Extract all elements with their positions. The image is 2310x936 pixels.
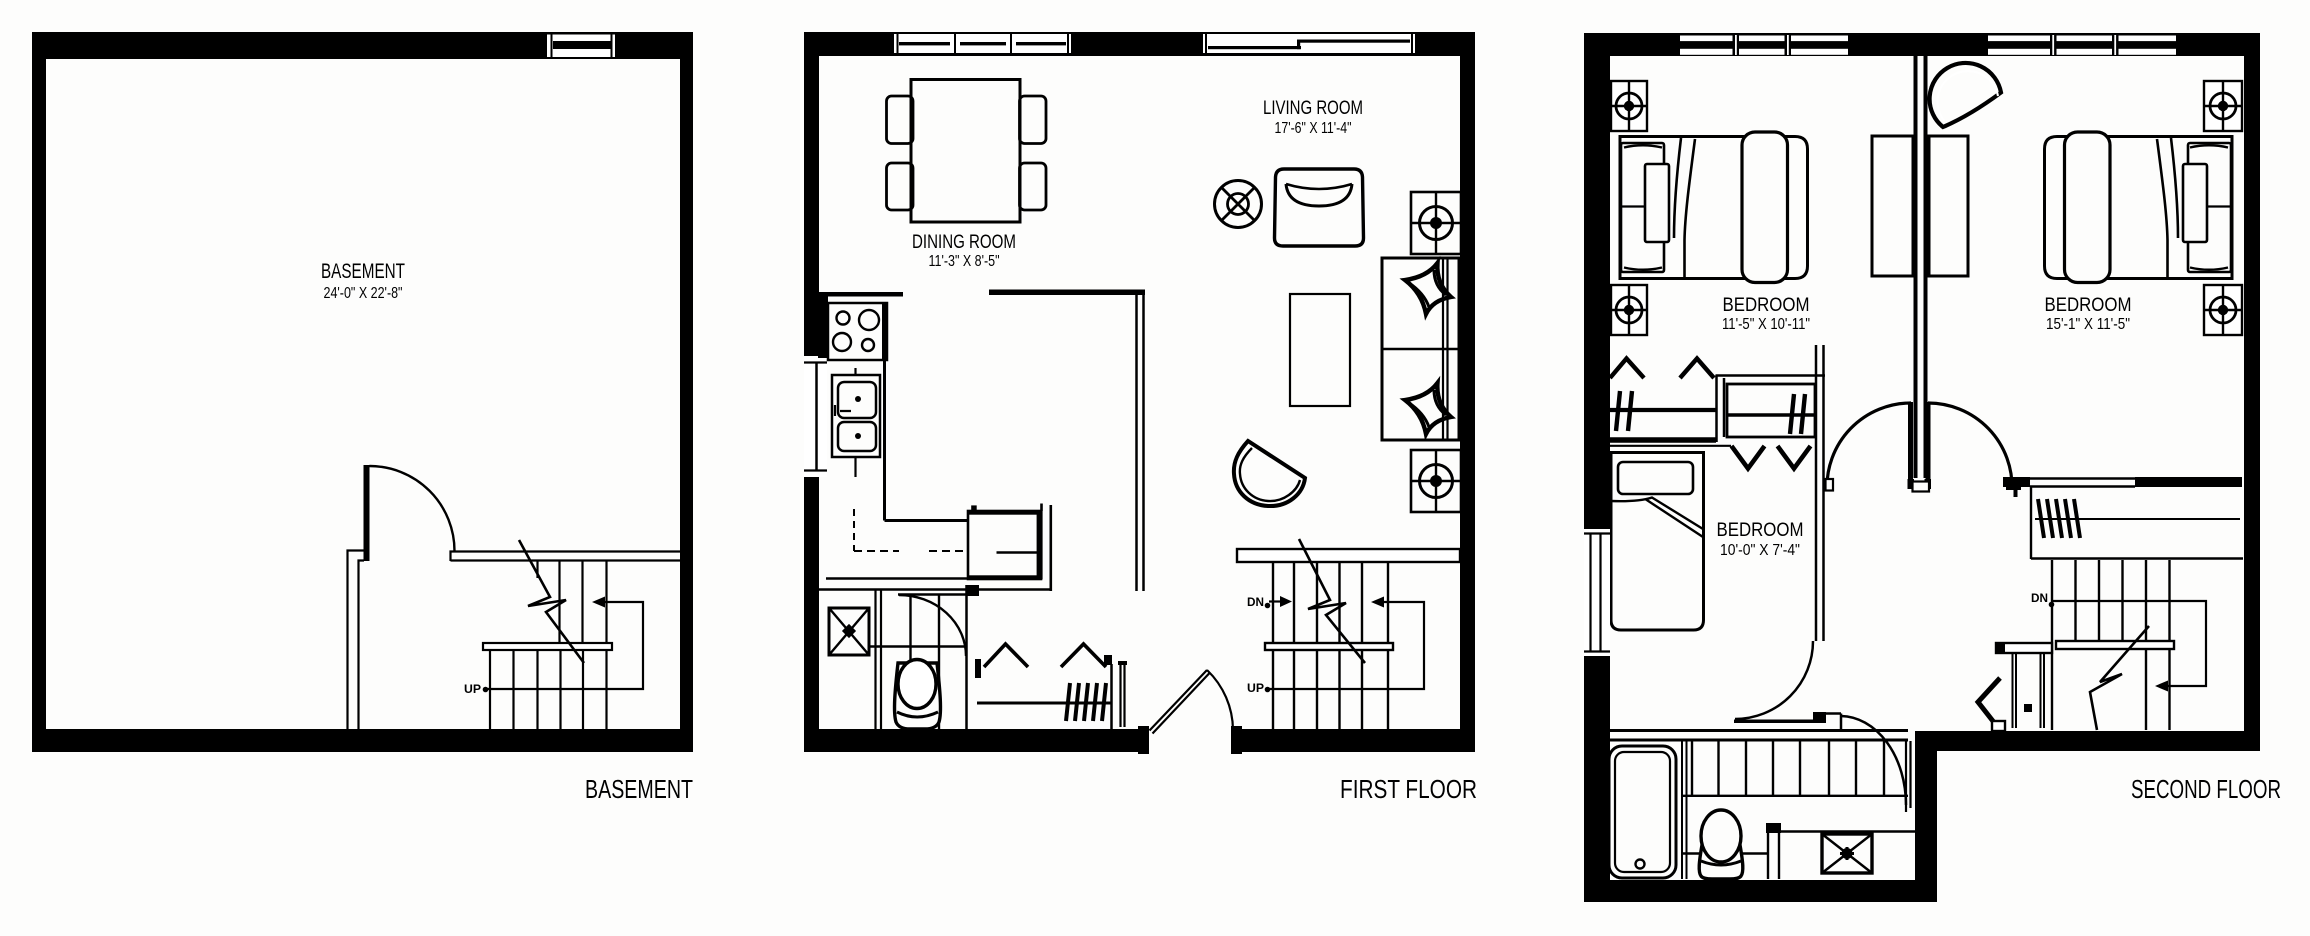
svg-text:BEDROOM: BEDROOM xyxy=(1723,295,1810,316)
svg-text:24'-0" X 22'-8": 24'-0" X 22'-8" xyxy=(324,285,403,302)
svg-text:15'-1" X 11'-5": 15'-1" X 11'-5" xyxy=(2046,316,2130,333)
svg-text:UP: UP xyxy=(1247,681,1264,695)
svg-text:BEDROOM: BEDROOM xyxy=(2045,295,2132,316)
svg-text:BASEMENT: BASEMENT xyxy=(321,259,405,283)
svg-text:SECOND FLOOR: SECOND FLOOR xyxy=(2131,774,2281,804)
svg-text:11'-3" X 8'-5": 11'-3" X 8'-5" xyxy=(929,253,1000,270)
svg-text:UP: UP xyxy=(464,682,481,696)
svg-text:17'-6" X 11'-4": 17'-6" X 11'-4" xyxy=(1275,120,1352,137)
svg-text:DINING ROOM: DINING ROOM xyxy=(912,232,1016,253)
svg-text:10'-0" X 7'-4": 10'-0" X 7'-4" xyxy=(1720,542,1800,559)
svg-text:DN: DN xyxy=(1247,595,1264,609)
svg-text:LIVING ROOM: LIVING ROOM xyxy=(1263,98,1363,119)
svg-text:11'-5" X 10'-11": 11'-5" X 10'-11" xyxy=(1722,316,1810,333)
svg-text:FIRST FLOOR: FIRST FLOOR xyxy=(1340,774,1477,804)
svg-text:BEDROOM: BEDROOM xyxy=(1717,520,1804,541)
svg-text:DN: DN xyxy=(2031,591,2048,605)
svg-text:BASEMENT: BASEMENT xyxy=(585,774,693,804)
